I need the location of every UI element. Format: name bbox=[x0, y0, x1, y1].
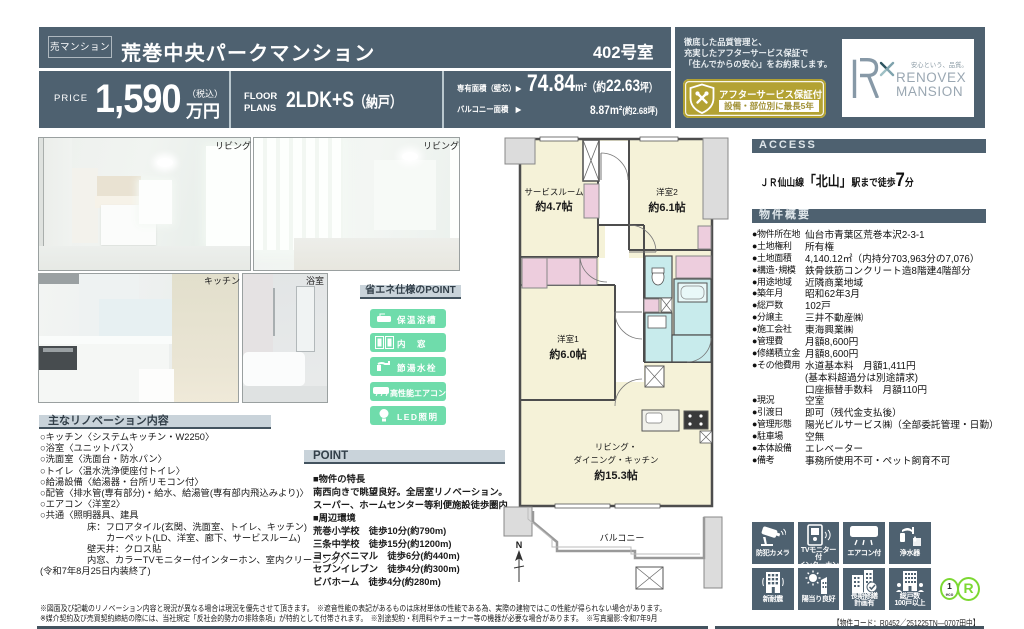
svg-text:約6.1帖: 約6.1帖 bbox=[648, 200, 685, 214]
svg-text:N: N bbox=[516, 540, 523, 550]
svg-text:約4.7帖: 約4.7帖 bbox=[535, 199, 572, 213]
svg-text:洋室2: 洋室2 bbox=[656, 187, 678, 197]
svg-text:ダイニング・キッチン: ダイニング・キッチン bbox=[573, 455, 658, 465]
svg-text:約6.0帖: 約6.0帖 bbox=[549, 347, 586, 361]
svg-text:リビング・: リビング・ bbox=[595, 442, 638, 452]
svg-text:洋室1: 洋室1 bbox=[557, 334, 579, 344]
svg-text:バルコニー: バルコニー bbox=[600, 533, 645, 543]
svg-text:サービスルーム: サービスルーム bbox=[524, 187, 583, 197]
svg-text:約15.3帖: 約15.3帖 bbox=[594, 468, 637, 482]
